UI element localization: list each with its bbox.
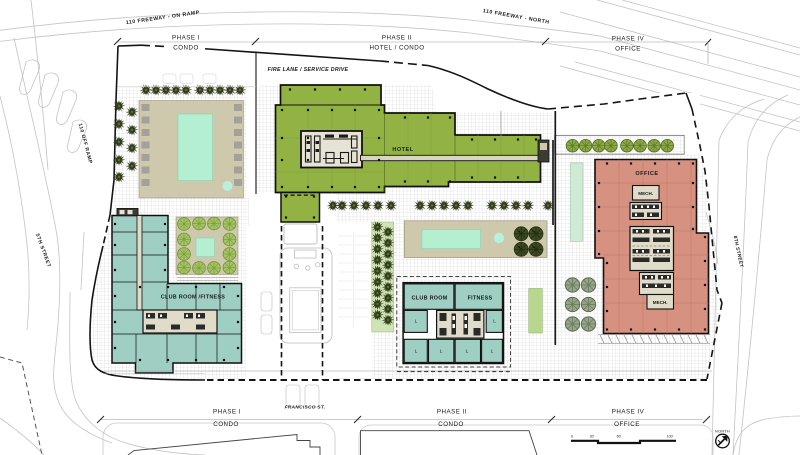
- svg-text:OFFICE: OFFICE: [614, 421, 640, 428]
- svg-text:PHASE I: PHASE I: [172, 35, 200, 42]
- svg-text:L: L: [491, 349, 494, 354]
- svg-text:OFFICE: OFFICE: [635, 171, 658, 177]
- svg-text:HOTEL: HOTEL: [392, 147, 413, 153]
- svg-text:CONDO: CONDO: [438, 421, 464, 428]
- svg-text:L: L: [415, 349, 418, 354]
- svg-text:0: 0: [571, 435, 573, 439]
- svg-text:MECH.: MECH.: [638, 191, 653, 196]
- svg-text:CLUB ROOM: CLUB ROOM: [412, 296, 448, 302]
- svg-text:L: L: [415, 319, 418, 324]
- svg-text:100': 100': [667, 435, 674, 439]
- svg-text:CONDO: CONDO: [213, 421, 239, 428]
- svg-text:MECH.: MECH.: [653, 300, 668, 305]
- svg-text:HOTEL / CONDO: HOTEL / CONDO: [369, 45, 424, 52]
- svg-text:OFFICE: OFFICE: [615, 46, 641, 53]
- svg-text:PHASE IV: PHASE IV: [612, 409, 645, 416]
- svg-text:PHASE II: PHASE II: [437, 409, 467, 416]
- svg-text:PHASE I: PHASE I: [213, 409, 241, 416]
- svg-text:FITNESS: FITNESS: [468, 296, 493, 302]
- svg-text:60': 60': [617, 435, 622, 439]
- svg-text:PHASE II: PHASE II: [382, 35, 412, 42]
- svg-text:L: L: [440, 349, 443, 354]
- svg-text:L: L: [493, 319, 496, 324]
- svg-text:FRANCISCO ST.: FRANCISCO ST.: [285, 405, 326, 411]
- svg-text:CLUB ROOM /FITNESS: CLUB ROOM /FITNESS: [161, 295, 226, 301]
- svg-text:PHASE IV: PHASE IV: [612, 36, 645, 43]
- svg-text:NORTH: NORTH: [715, 430, 730, 434]
- svg-text:L: L: [466, 349, 469, 354]
- svg-text:30': 30': [590, 435, 595, 439]
- svg-text:CONDO: CONDO: [173, 45, 199, 52]
- svg-text:FIRE LANE / SERVICE DRIVE: FIRE LANE / SERVICE DRIVE: [268, 67, 349, 73]
